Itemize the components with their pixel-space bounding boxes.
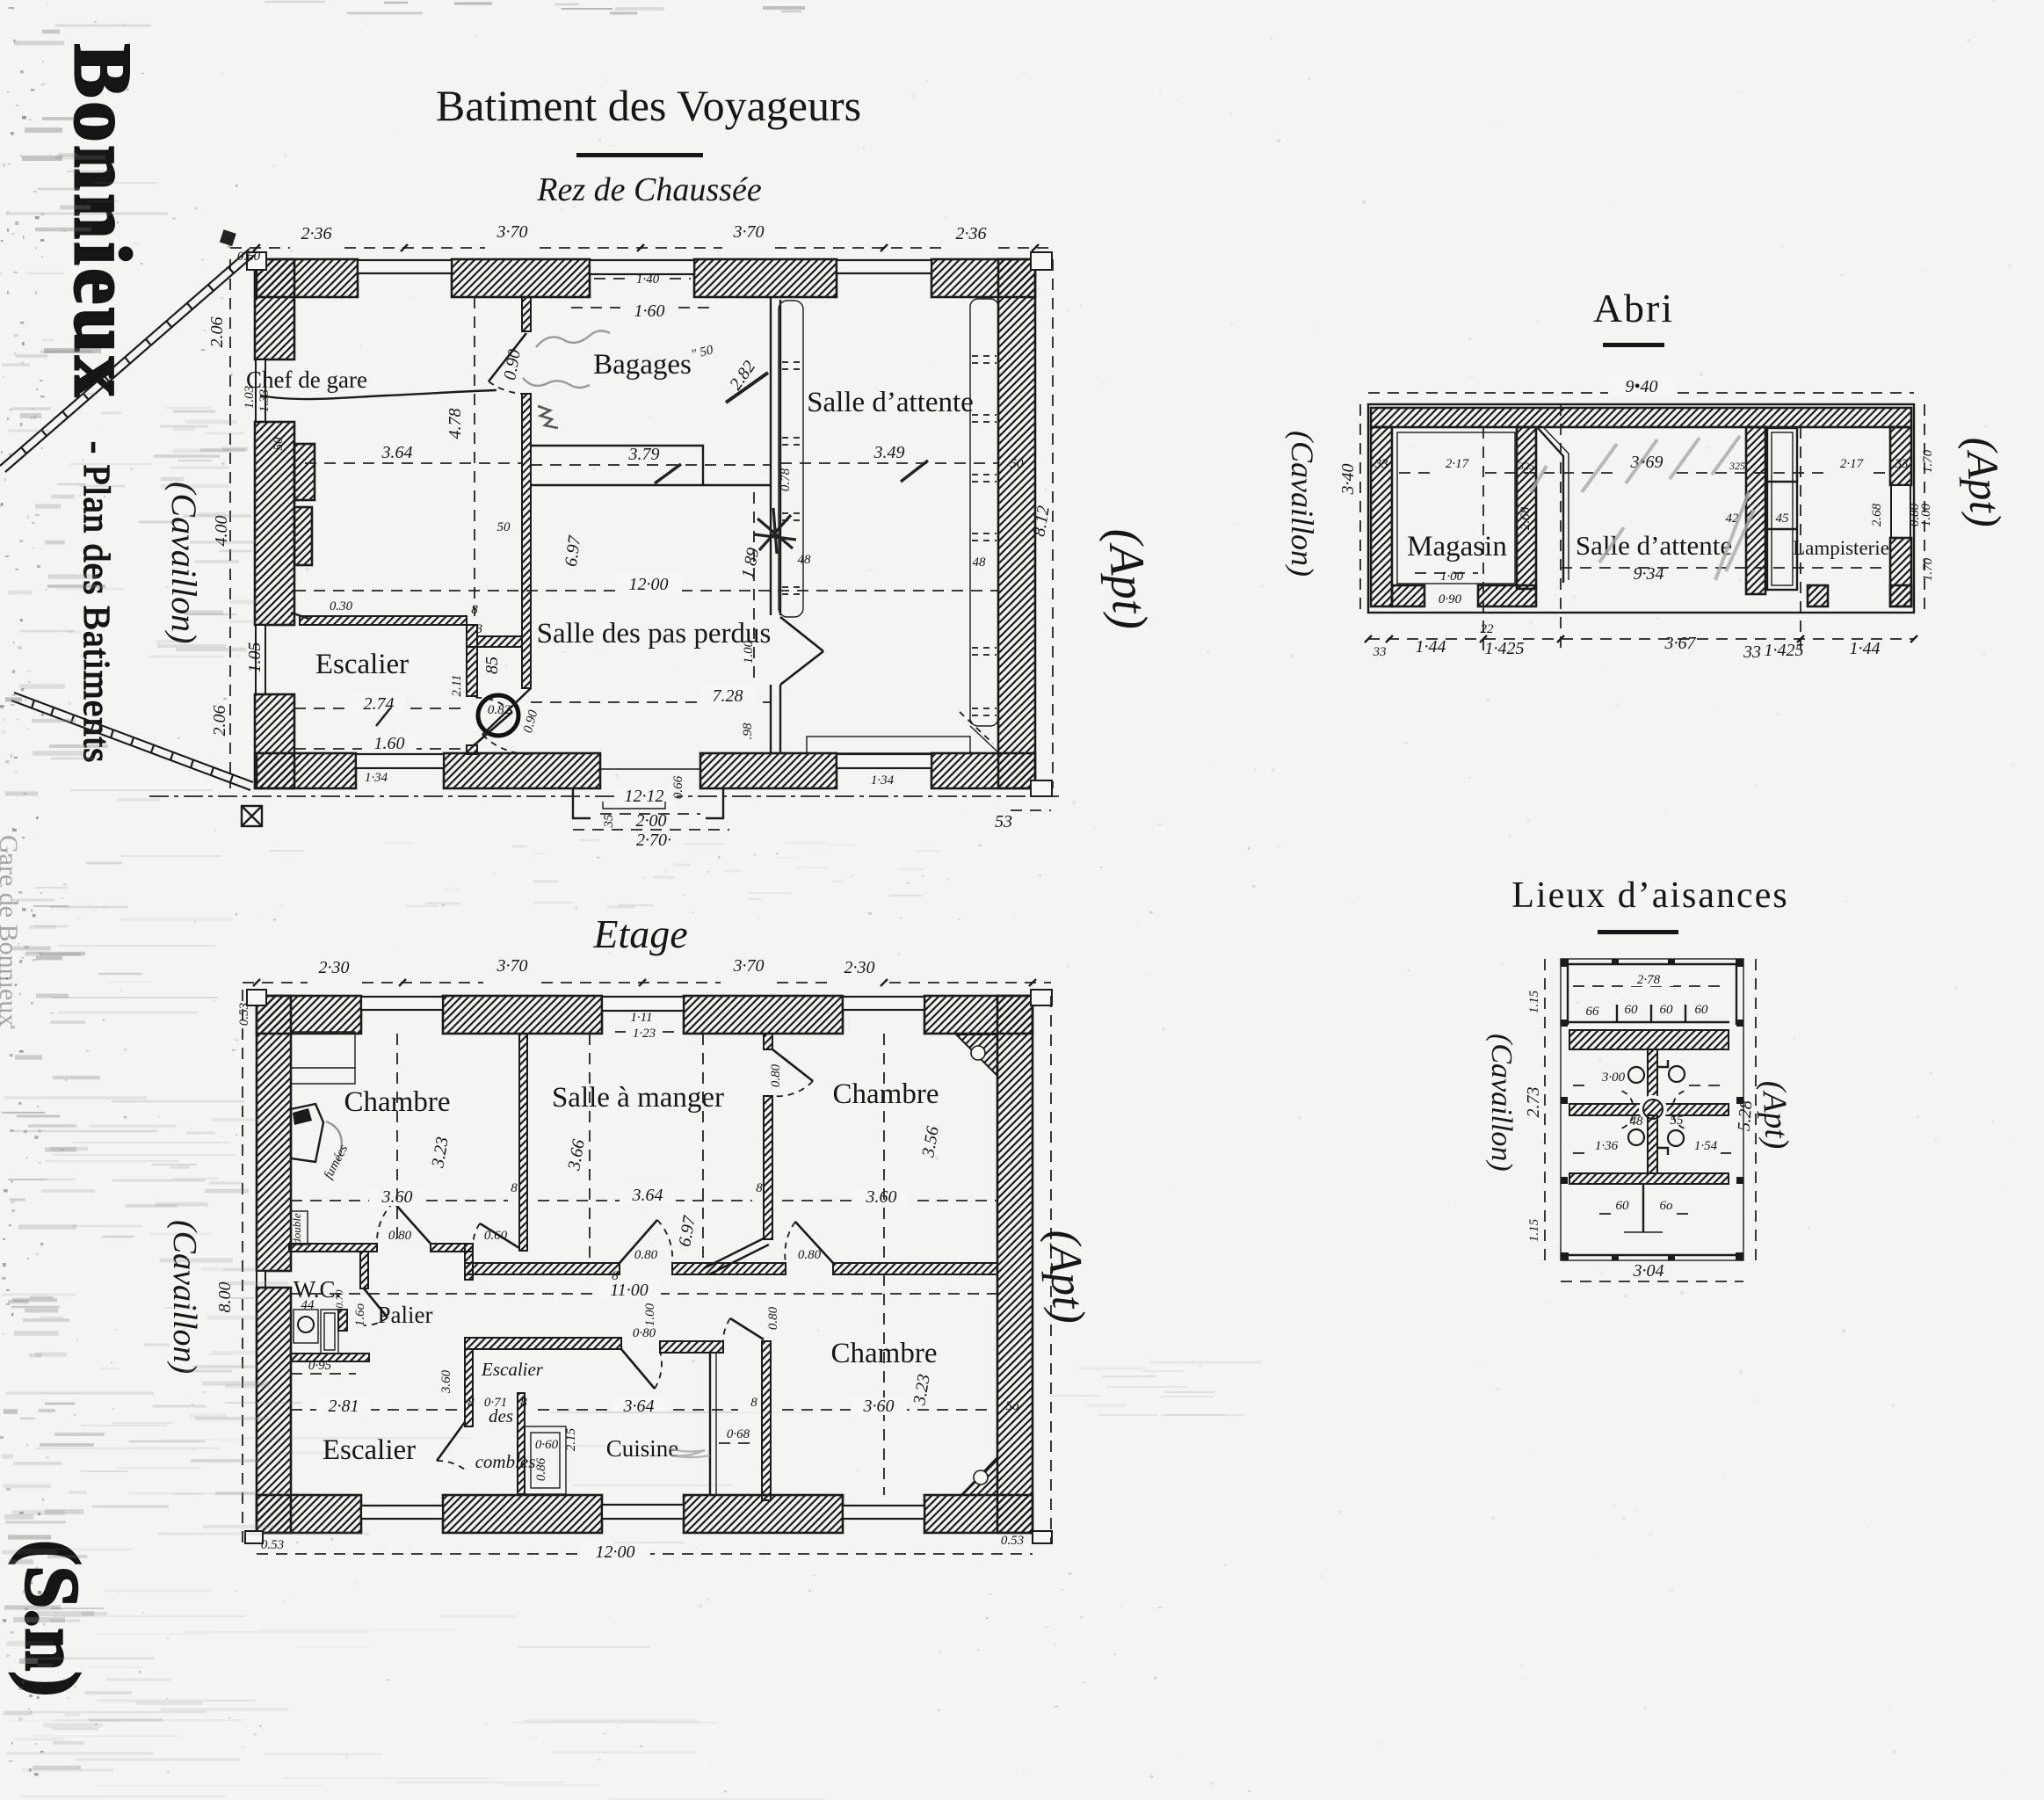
svg-text:48: 48 [798, 553, 812, 567]
svg-text:6o: 6o [1660, 1199, 1674, 1213]
svg-text:1·60: 1·60 [634, 301, 665, 321]
svg-text:325: 325 [1518, 460, 1534, 472]
svg-text:48: 48 [1630, 1114, 1644, 1129]
svg-text:22: 22 [1481, 622, 1495, 636]
svg-text:(Cavaillon): (Cavaillon) [166, 1220, 203, 1374]
svg-text:0.66: 0.66 [671, 775, 685, 799]
svg-text:0·60: 0·60 [535, 1438, 559, 1452]
svg-text:Salle d’attente: Salle d’attente [1576, 530, 1732, 561]
svg-text:2·17: 2·17 [1446, 457, 1470, 471]
svg-text:48: 48 [973, 555, 987, 570]
svg-text:3·00: 3·00 [1601, 1071, 1626, 1085]
svg-text:8: 8 [475, 622, 482, 636]
svg-text:33: 33 [1743, 642, 1761, 662]
svg-text:Palier: Palier [378, 1302, 433, 1328]
svg-text:Lampisterie: Lampisterie [1793, 537, 1889, 559]
svg-text:7.28: 7.28 [713, 686, 743, 706]
svg-text:0.53: 0.53 [261, 1538, 284, 1552]
svg-text:5.28: 5.28 [1735, 1100, 1757, 1132]
svg-text:Chef de gare: Chef de gare [246, 367, 367, 393]
svg-text:Salle à manger: Salle à manger [552, 1082, 724, 1114]
svg-text:Magasin: Magasin [1407, 531, 1507, 562]
svg-text:1.60: 1.60 [374, 734, 405, 753]
svg-text:3·04: 3·04 [1633, 1261, 1664, 1281]
svg-text:1·34: 1·34 [871, 773, 895, 787]
svg-text:2.06: 2.06 [207, 317, 227, 348]
svg-text:5o: 5o [1006, 1399, 1020, 1413]
svg-text:0.82: 0.82 [488, 703, 511, 717]
svg-text:1.00: 1.00 [643, 1303, 657, 1326]
svg-text:Escalier: Escalier [481, 1359, 544, 1380]
svg-text:1.03: 1.03 [243, 386, 257, 409]
svg-text:1·23: 1·23 [633, 1027, 656, 1041]
svg-text:1.33: 1.33 [257, 389, 272, 412]
svg-text:Salle d’attente: Salle d’attente [807, 387, 974, 418]
svg-text:8: 8 [750, 1396, 757, 1410]
svg-text:1·44: 1·44 [1850, 639, 1881, 658]
svg-text:Rez de Chaussée: Rez de Chaussée [536, 171, 762, 208]
svg-text:0.80: 0.80 [634, 1248, 658, 1262]
svg-text:Escalier: Escalier [323, 1434, 416, 1466]
svg-text:3·40: 3·40 [1338, 464, 1358, 496]
svg-text:2·36: 2·36 [301, 224, 332, 243]
svg-text:Batiment des Voyageurs: Batiment des Voyageurs [436, 81, 861, 130]
svg-text:0.80: 0.80 [388, 1229, 412, 1243]
svg-text:0·90: 0·90 [1439, 592, 1462, 606]
svg-text:0·80: 0·80 [633, 1326, 656, 1340]
svg-text:1.00: 1.00 [1919, 503, 1933, 526]
svg-text:1.6o: 1.6o [353, 1303, 367, 1326]
svg-text:- Plan des Batiments: - Plan des Batiments [76, 441, 116, 763]
svg-text:1.05: 1.05 [245, 642, 265, 673]
svg-text:11·00: 11·00 [610, 1281, 649, 1300]
svg-text:1·00: 1·00 [1440, 570, 1464, 584]
svg-text:1·40: 1·40 [636, 272, 660, 287]
svg-text:85: 85 [482, 657, 502, 674]
svg-text:60: 60 [1660, 1003, 1674, 1017]
svg-text:0.78: 0.78 [779, 468, 793, 491]
svg-text:Abri: Abri [1593, 286, 1674, 330]
svg-text:8: 8 [756, 1181, 763, 1195]
svg-text:.98: .98 [741, 722, 755, 739]
svg-text:3·60: 3·60 [863, 1397, 895, 1416]
svg-text:2.11: 2.11 [450, 674, 464, 696]
svg-text:2·81: 2·81 [329, 1397, 359, 1416]
svg-text:0.53: 0.53 [1001, 1534, 1024, 1548]
svg-text:3·70: 3·70 [733, 956, 765, 976]
svg-text:9•40: 9•40 [1625, 377, 1657, 396]
svg-text:3.64: 3.64 [381, 443, 413, 462]
svg-text:3.79: 3.79 [628, 445, 660, 464]
svg-text:12·00: 12·00 [629, 575, 669, 594]
svg-text:50: 50 [497, 520, 511, 534]
svg-text:2.15: 2.15 [564, 1427, 578, 1451]
svg-text:3·70: 3·70 [497, 222, 528, 242]
svg-text:3.60: 3.60 [439, 1369, 453, 1394]
svg-text:1·425: 1·425 [1485, 639, 1525, 658]
svg-text:35: 35 [602, 814, 616, 829]
svg-text:2.06: 2.06 [210, 706, 229, 737]
svg-text:0·68: 0·68 [727, 1427, 750, 1441]
svg-text:3.49: 3.49 [873, 443, 905, 462]
svg-text:45: 45 [1776, 512, 1790, 526]
svg-text:3.60: 3.60 [866, 1187, 897, 1207]
svg-text:8: 8 [511, 1181, 518, 1195]
svg-text:2·00: 2·00 [636, 811, 667, 831]
svg-text:Escalier: Escalier [315, 649, 409, 680]
svg-text:Cuisine: Cuisine [606, 1435, 679, 1462]
svg-text:(Apt): (Apt) [1039, 1229, 1094, 1325]
svg-text:1·425: 1·425 [1765, 641, 1804, 660]
svg-text:1·44: 1·44 [1416, 637, 1446, 657]
svg-text:0.30: 0.30 [330, 599, 353, 613]
svg-text:0.86: 0.86 [534, 1457, 548, 1481]
svg-text:2·30: 2·30 [844, 958, 875, 977]
svg-text:0.80: 0.80 [766, 1306, 780, 1330]
svg-text:1.70: 1.70 [1921, 557, 1935, 581]
svg-text:3·70: 3·70 [497, 956, 528, 976]
svg-text:0.80: 0.80 [798, 1248, 822, 1262]
svg-text:3·70: 3·70 [733, 222, 765, 242]
svg-text:60: 60 [1616, 1199, 1630, 1213]
svg-text:Bagages: Bagages [593, 349, 692, 381]
svg-text:1·34: 1·34 [365, 771, 388, 785]
svg-text:66: 66 [1586, 1005, 1600, 1019]
svg-text:44: 44 [301, 1298, 315, 1312]
svg-text:2·30: 2·30 [319, 958, 350, 977]
svg-text:1.15: 1.15 [1527, 1218, 1541, 1242]
svg-text:0·95: 0·95 [308, 1359, 332, 1373]
svg-text:Salle des pas perdus: Salle des pas perdus [537, 618, 772, 650]
svg-text:Gare de Bonnieux: Gare de Bonnieux [0, 835, 23, 1027]
svg-text:2·17: 2·17 [1840, 457, 1865, 471]
svg-text:(Apt): (Apt) [1957, 436, 2011, 529]
svg-text:8: 8 [520, 1396, 527, 1410]
svg-text:Lieux d’aisances: Lieux d’aisances [1511, 875, 1788, 916]
svg-text:1·54: 1·54 [1694, 1139, 1718, 1153]
svg-text:50: 50 [1011, 457, 1025, 471]
svg-text:1.15: 1.15 [1527, 990, 1541, 1013]
svg-text:2.68: 2.68 [1519, 506, 1533, 530]
svg-text:1.70: 1.70 [1921, 449, 1935, 473]
svg-text:1·36: 1·36 [1595, 1139, 1619, 1153]
svg-text:Etage: Etage [592, 911, 687, 956]
svg-text:0.70: 0.70 [333, 1290, 345, 1309]
svg-text:3.64: 3.64 [632, 1186, 663, 1205]
svg-text:33: 33 [1373, 645, 1387, 659]
svg-text:1·11: 1·11 [630, 1011, 652, 1025]
svg-text:60: 60 [1695, 1003, 1709, 1017]
svg-text:8: 8 [612, 1269, 619, 1283]
svg-text:12·00: 12·00 [596, 1542, 635, 1562]
svg-text:2·70·: 2·70· [636, 831, 671, 850]
svg-text:0·71: 0·71 [484, 1396, 507, 1410]
svg-text:8: 8 [471, 603, 478, 617]
svg-text:double: double [290, 1213, 303, 1245]
svg-text:2·36: 2·36 [956, 224, 987, 243]
svg-text:33: 33 [1895, 457, 1909, 471]
svg-text:(Apt): (Apt) [1098, 526, 1157, 630]
svg-text:0.80: 0.80 [769, 1063, 783, 1087]
svg-text:53: 53 [995, 812, 1012, 831]
svg-text:8: 8 [468, 1396, 475, 1410]
svg-text:0.53: 0.53 [237, 1003, 251, 1026]
svg-text:Bonnieux: Bonnieux [58, 44, 148, 400]
svg-text:33: 33 [1374, 457, 1388, 471]
svg-text:0.60: 0.60 [484, 1229, 508, 1243]
svg-text:combles: combles [475, 1451, 536, 1472]
svg-text:2.68: 2.68 [1870, 503, 1884, 526]
svg-text:50: 50 [272, 437, 286, 451]
svg-text:(Apt): (Apt) [1755, 1079, 1795, 1150]
svg-text:60: 60 [1625, 1003, 1639, 1017]
svg-text:55: 55 [1671, 1114, 1685, 1128]
svg-text:(Cavaillon): (Cavaillon) [1285, 431, 1320, 577]
svg-text:Chambre: Chambre [833, 1078, 939, 1110]
svg-text:325: 325 [1729, 460, 1745, 472]
svg-text:4.78: 4.78 [446, 409, 465, 439]
svg-text:(Cavaillon): (Cavaillon) [1485, 1034, 1518, 1172]
svg-text:2·78: 2·78 [1637, 973, 1661, 987]
svg-text:12·12: 12·12 [625, 787, 664, 806]
svg-text:3·67: 3·67 [1664, 634, 1697, 653]
